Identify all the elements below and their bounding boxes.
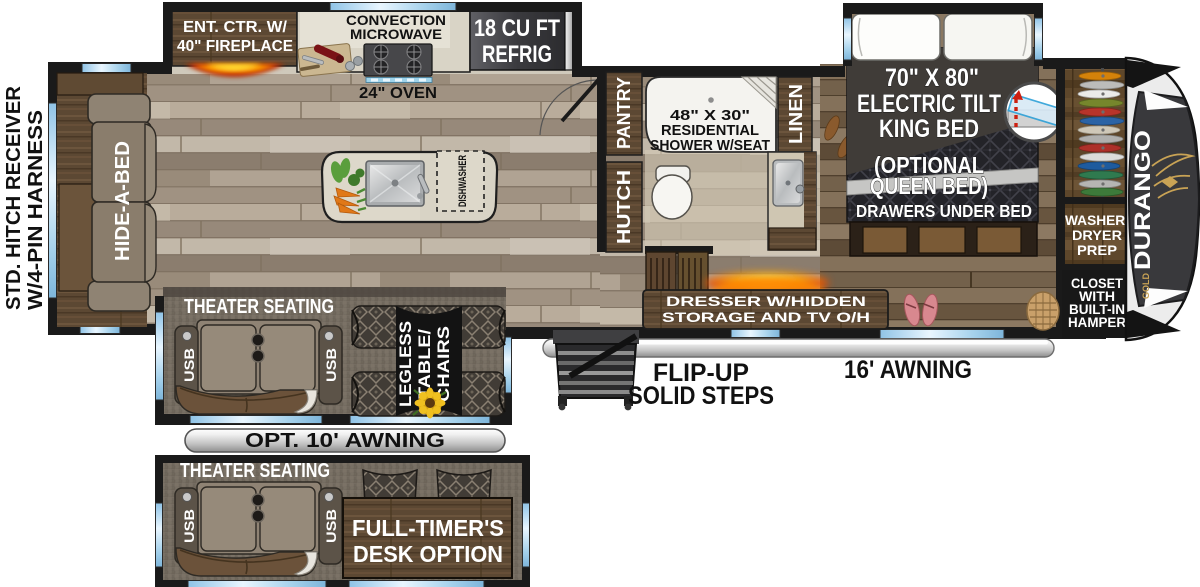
- svg-text:THEATER SEATING: THEATER SEATING: [180, 460, 330, 482]
- svg-text:HUTCH: HUTCH: [614, 170, 634, 244]
- svg-text:MICROWAVE: MICROWAVE: [350, 26, 442, 42]
- svg-text:SHOWER W/SEAT: SHOWER W/SEAT: [650, 137, 770, 154]
- svg-text:HIDE-A-BED: HIDE-A-BED: [112, 141, 134, 261]
- svg-text:ELECTRIC TILT: ELECTRIC TILT: [857, 90, 1001, 118]
- svg-text:W/4-PIN HARNESS: W/4-PIN HARNESS: [25, 110, 47, 310]
- svg-text:USB: USB: [182, 509, 197, 543]
- svg-text:DRYER: DRYER: [1072, 227, 1122, 243]
- svg-text:18 CU FT: 18 CU FT: [474, 15, 560, 42]
- svg-text:DRAWERS UNDER BED: DRAWERS UNDER BED: [856, 201, 1032, 221]
- svg-text:PANTRY: PANTRY: [614, 77, 634, 149]
- svg-text:CHAIRS: CHAIRS: [435, 326, 453, 402]
- svg-text:DISHWASHER: DISHWASHER: [457, 155, 469, 207]
- svg-text:LINEN: LINEN: [786, 84, 806, 144]
- svg-text:GOLD: GOLD: [1141, 273, 1151, 299]
- svg-text:24" OVEN: 24" OVEN: [359, 85, 437, 102]
- svg-text:REFRIG: REFRIG: [482, 41, 552, 68]
- svg-text:SOLID STEPS: SOLID STEPS: [628, 382, 774, 410]
- svg-text:16' AWNING: 16' AWNING: [844, 356, 972, 384]
- svg-text:USB: USB: [324, 509, 339, 543]
- svg-text:QUEEN BED): QUEEN BED): [870, 173, 988, 199]
- svg-text:40" FIREPLACE: 40" FIREPLACE: [177, 38, 293, 55]
- svg-text:FULL-TIMER'S: FULL-TIMER'S: [352, 515, 504, 541]
- svg-text:STD. HITCH RECEIVER: STD. HITCH RECEIVER: [3, 85, 25, 310]
- svg-text:KING BED: KING BED: [879, 115, 979, 143]
- svg-text:THEATER SEATING: THEATER SEATING: [184, 296, 334, 318]
- svg-text:DURANGO: DURANGO: [1130, 130, 1155, 270]
- svg-text:OPT. 10' AWNING: OPT. 10' AWNING: [245, 430, 445, 452]
- svg-text:DESK OPTION: DESK OPTION: [353, 541, 503, 567]
- svg-text:PREP: PREP: [1077, 242, 1117, 258]
- svg-text:70" X 80": 70" X 80": [885, 64, 979, 92]
- svg-text:HAMPER: HAMPER: [1068, 315, 1126, 330]
- svg-text:USB: USB: [182, 348, 197, 382]
- svg-text:STORAGE AND TV O/H: STORAGE AND TV O/H: [662, 309, 870, 325]
- svg-text:USB: USB: [324, 348, 339, 382]
- svg-text:LEGLESS: LEGLESS: [397, 321, 415, 407]
- svg-text:DRESSER W/HIDDEN: DRESSER W/HIDDEN: [666, 293, 866, 309]
- svg-text:WASHER/: WASHER/: [1065, 212, 1129, 228]
- svg-text:ENT. CTR. W/: ENT. CTR. W/: [183, 19, 288, 36]
